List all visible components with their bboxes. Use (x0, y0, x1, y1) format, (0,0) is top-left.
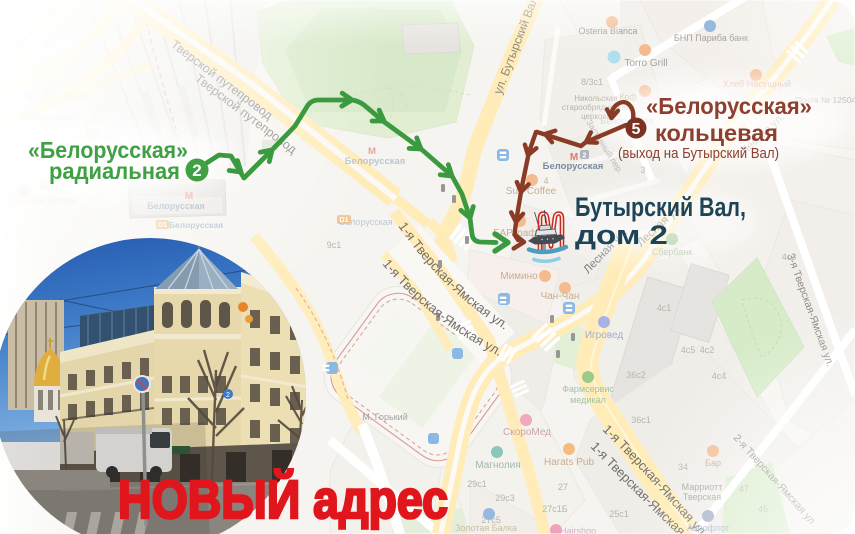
svg-text:радиальная: радиальная (49, 158, 180, 184)
svg-text:2: 2 (226, 392, 230, 399)
svg-text:2: 2 (192, 161, 201, 180)
svg-text:«Белорусская»: «Белорусская» (646, 93, 812, 119)
svg-text:Бутырский Вал,: Бутырский Вал, (575, 192, 746, 222)
svg-text:дом 2: дом 2 (575, 220, 668, 250)
svg-text:5: 5 (632, 121, 641, 138)
svg-text:НОВЫЙ адрес: НОВЫЙ адрес (118, 469, 448, 530)
svg-text:(выход на Бутырский Вал): (выход на Бутырский Вал) (618, 145, 779, 162)
svg-text:кольцевая: кольцевая (655, 120, 778, 146)
